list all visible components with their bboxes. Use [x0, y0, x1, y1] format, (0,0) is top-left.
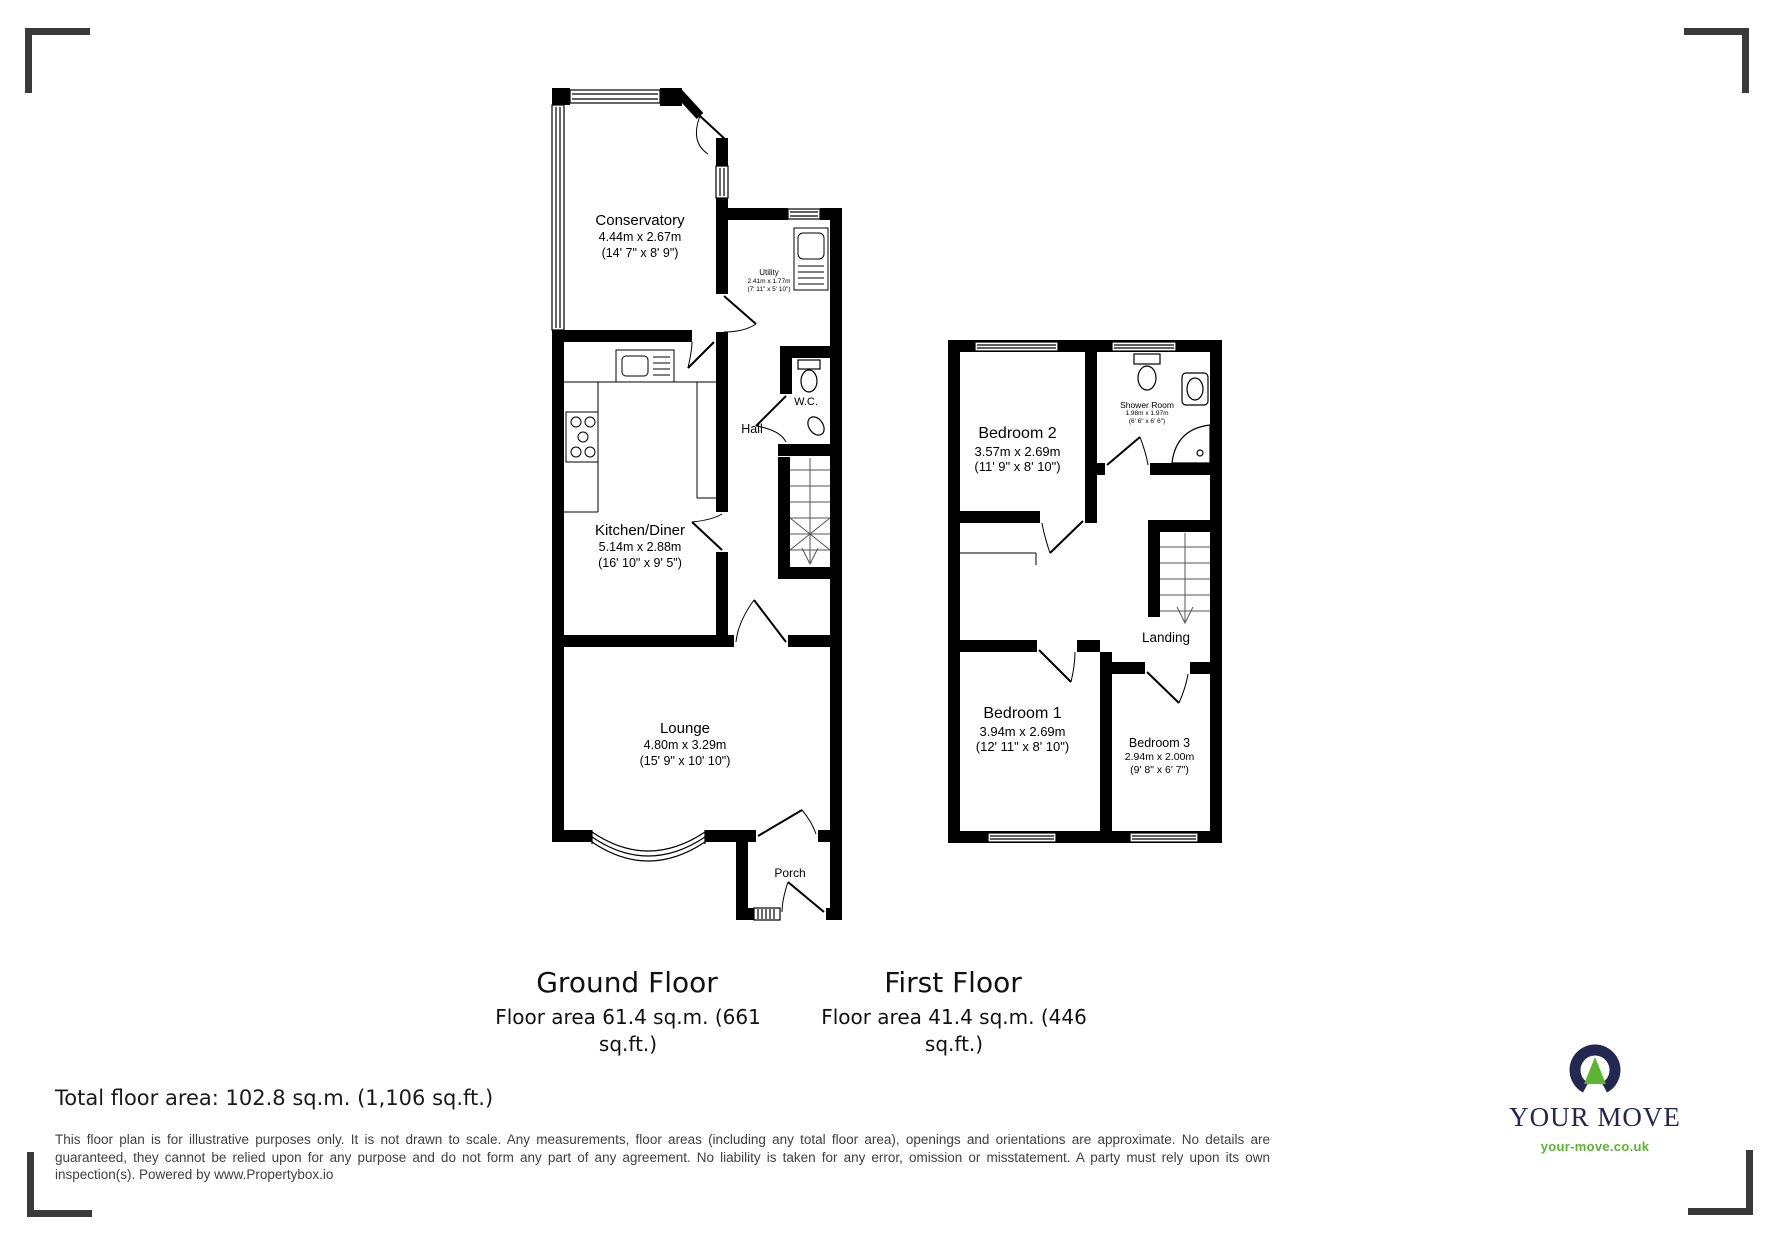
corner-mark-bottom-right [1688, 1150, 1753, 1215]
floorplan-page: { "plan": { "ground": { "title": "Ground… [0, 0, 1771, 1239]
first-stairs-icon [1160, 533, 1210, 623]
toilet-icon [798, 360, 820, 369]
room-label-bedroom3: Bedroom 3 2.94m x 2.00m (9' 8" x 6' 7") [1117, 736, 1202, 777]
ground-stairs-icon [790, 458, 830, 564]
kitchen-fixtures [564, 350, 716, 512]
room-label-conservatory: Conservatory 4.44m x 2.67m (14' 7" x 8' … [560, 212, 720, 261]
corner-mark-top-right [1684, 28, 1749, 93]
first-floor-plan-drawing [940, 335, 1235, 855]
room-label-porch: Porch [760, 866, 820, 881]
yourmove-logo: YOUR MOVE your-move.co.uk [1500, 1042, 1690, 1154]
ground-floor-title: Ground Floor [477, 966, 777, 999]
basin-icon [805, 414, 828, 438]
room-label-wc: W.C. [776, 396, 836, 409]
first-floor-area: Floor area 41.4 sq.m. (446 sq.ft.) [818, 1004, 1090, 1058]
corner-mark-top-left [25, 28, 90, 93]
yourmove-website: your-move.co.uk [1500, 1139, 1690, 1154]
room-label-shower-room: Shower Room 1.98m x 1.97m (6' 6" x 6' 6"… [1109, 400, 1185, 426]
room-label-utility: Utility 2.41m x 1.77m (7' 11" x 5' 10") [733, 268, 805, 294]
yourmove-triangle-icon [1584, 1057, 1606, 1084]
toilet-icon [1134, 354, 1160, 364]
room-label-landing: Landing [1126, 630, 1206, 646]
ground-bay-window [592, 830, 705, 861]
ground-floor-plan-drawing [540, 78, 860, 938]
yourmove-brand-name: YOUR MOVE [1500, 1102, 1690, 1133]
yourmove-horseshoe-icon [1564, 1042, 1626, 1100]
total-floor-area: Total floor area: 102.8 sq.m. (1,106 sq.… [55, 1086, 493, 1110]
landing-cupboard-line [960, 553, 1036, 565]
room-label-bedroom2: Bedroom 2 3.57m x 2.69m (11' 9" x 8' 10"… [945, 424, 1090, 475]
first-floor-title: First Floor [803, 966, 1103, 999]
room-label-bedroom1: Bedroom 1 3.94m x 2.69m (12' 11" x 8' 10… [950, 704, 1095, 755]
room-label-lounge: Lounge 4.80m x 3.29m (15' 9" x 10' 10") [600, 720, 770, 769]
disclaimer-text: This floor plan is for illustrative purp… [55, 1131, 1270, 1184]
room-label-hall: Hall [722, 422, 782, 437]
ground-floor-area: Floor area 61.4 sq.m. (661 sq.ft.) [492, 1004, 764, 1058]
room-label-kitchen-diner: Kitchen/Diner 5.14m x 2.88m (16' 10" x 9… [560, 522, 720, 571]
shower-tray-icon [1172, 425, 1210, 463]
